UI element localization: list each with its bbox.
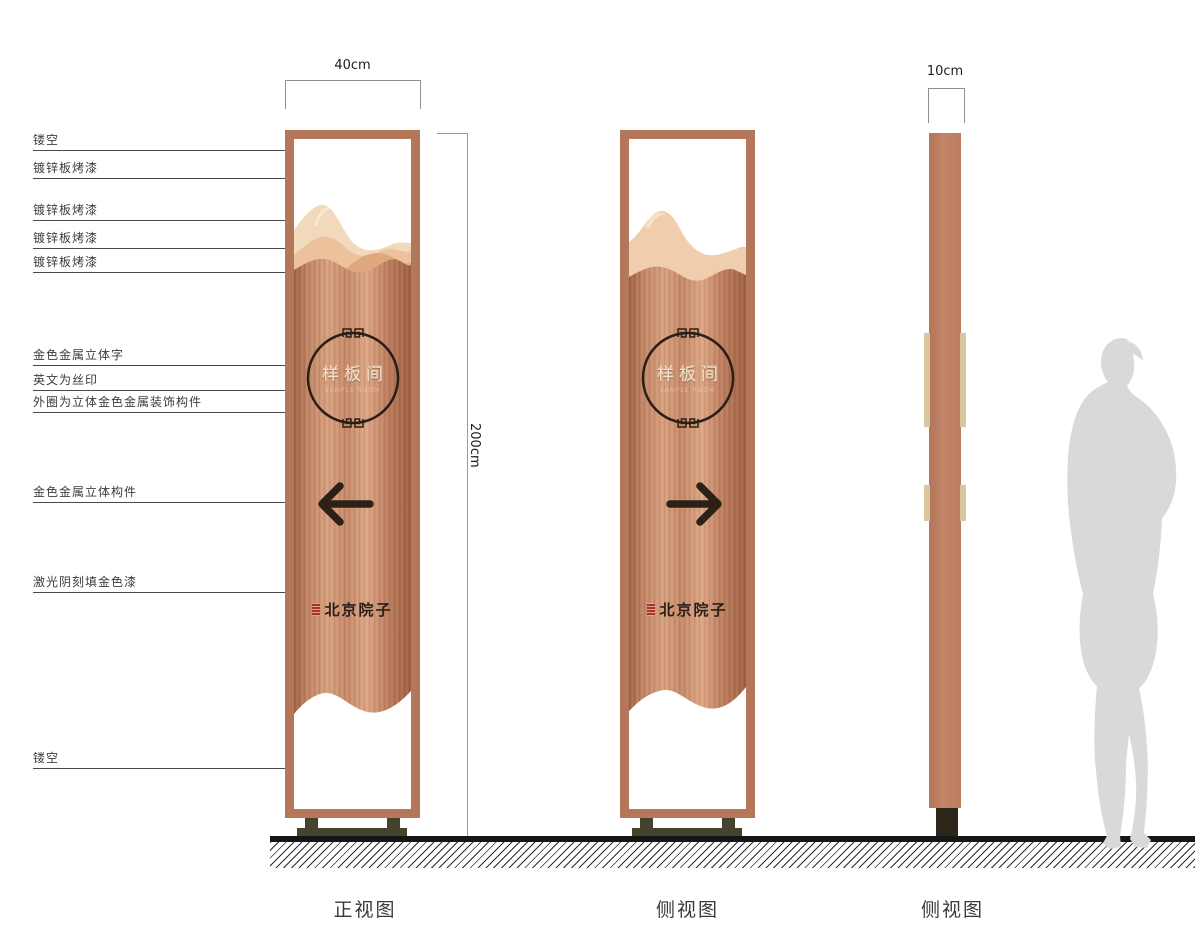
side-panel-graphic (629, 139, 746, 809)
profile-column (929, 133, 961, 808)
person-silhouette (1036, 336, 1194, 853)
callout-galvanized-4: 镀锌板烤漆 (33, 255, 292, 273)
dimension-height-line (467, 133, 468, 836)
caption-side-view: 侧视图 (620, 895, 755, 922)
callout-hollow-top: 镂空 (33, 133, 307, 151)
signage-design-drawing: 镂空 镀锌板烤漆 镀锌板烤漆 镀锌板烤漆 镀锌板烤漆 金色金属立体字 英文为丝印… (0, 0, 1195, 927)
callout-hollow-bottom: 镂空 (33, 751, 303, 769)
dimension-height-label: 200cm (467, 423, 482, 468)
callout-galvanized-1: 镀锌板烤漆 (33, 161, 287, 179)
dimension-height-tick (437, 133, 467, 134)
callout-laser-engrave: 激光阴刻填金色漆 (33, 575, 310, 593)
dimension-front-width-bracket (285, 80, 421, 109)
mounting-strip-left-lower (924, 485, 930, 521)
profile-foot (936, 808, 958, 838)
seal-icon (647, 603, 655, 616)
dimension-front-width-label: 40cm (285, 58, 420, 73)
wood-body (294, 259, 411, 714)
brand-calligraphy: 北京院子 (629, 599, 746, 620)
side-view-panel: 样板间 SAMPLE ROOM 北京院子 (620, 130, 755, 818)
callout-galvanized-3: 镀锌板烤漆 (33, 231, 292, 249)
dimension-side-depth-bracket (928, 88, 965, 123)
brand-calligraphy: 北京院子 (294, 599, 411, 620)
mounting-strip-right-upper (960, 333, 966, 427)
caption-front-view: 正视图 (285, 895, 445, 922)
seal-icon (312, 603, 320, 616)
mounting-strip-left-upper (924, 333, 930, 427)
front-panel-graphic (294, 139, 411, 809)
mounting-strip-right-lower (960, 485, 966, 521)
callout-galvanized-2: 镀锌板烤漆 (33, 203, 323, 221)
callout-ring-ornament: 外圈为立体金色金属装饰构件 (33, 395, 316, 413)
dimension-side-depth-label: 10cm (910, 64, 980, 79)
front-view-panel: 样板间 SAMPLE ROOM 北京院子 (285, 130, 420, 818)
caption-profile-view: 侧视图 (905, 895, 1000, 922)
